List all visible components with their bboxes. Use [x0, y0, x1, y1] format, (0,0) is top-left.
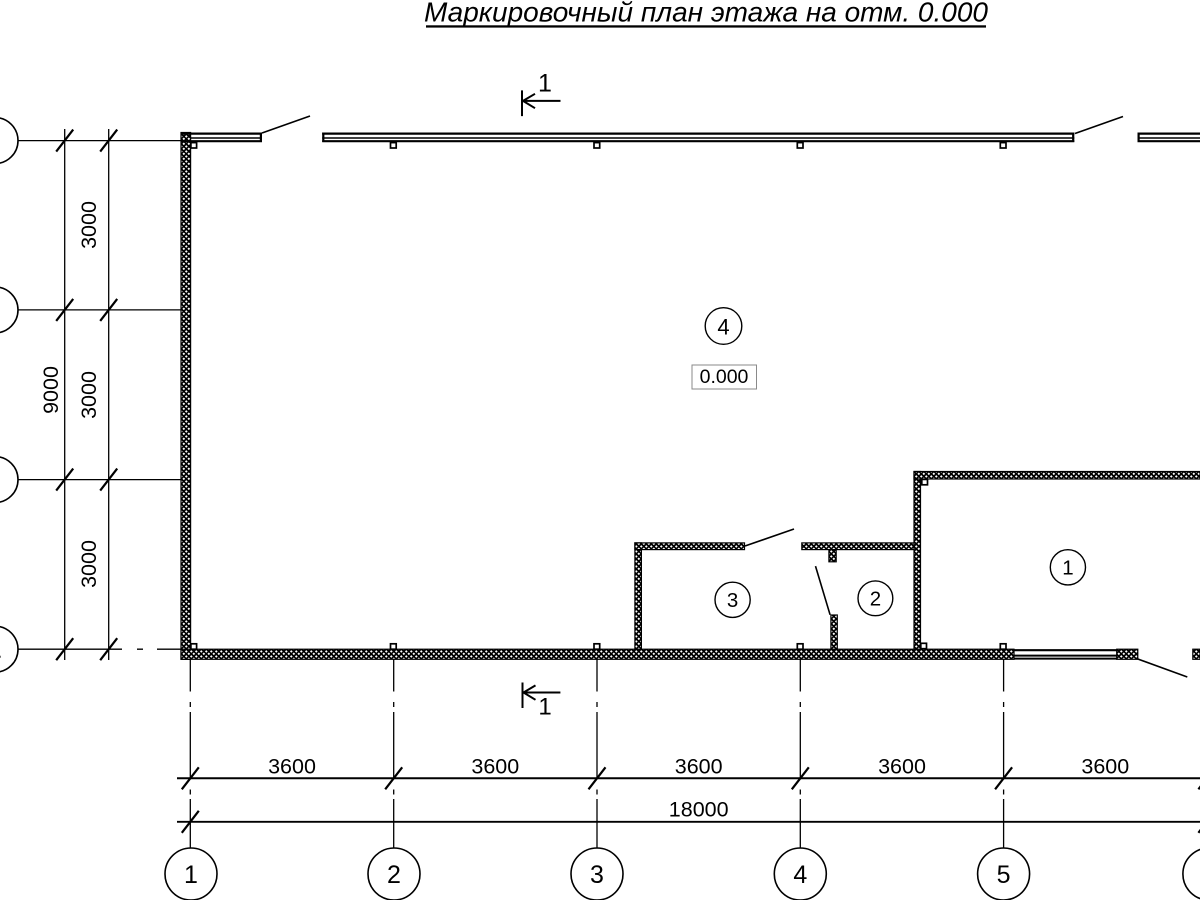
svg-text:А: А — [0, 637, 1, 664]
svg-text:3600: 3600 — [268, 755, 316, 779]
svg-text:9000: 9000 — [39, 366, 63, 414]
svg-text:3000: 3000 — [77, 371, 101, 419]
svg-text:0.000: 0.000 — [700, 366, 749, 388]
svg-text:1: 1 — [184, 861, 198, 889]
svg-text:3: 3 — [727, 589, 738, 612]
svg-text:5: 5 — [997, 861, 1011, 889]
svg-text:3600: 3600 — [878, 755, 926, 779]
svg-text:3600: 3600 — [1081, 755, 1129, 779]
svg-text:3000: 3000 — [77, 540, 101, 588]
svg-text:3600: 3600 — [675, 755, 723, 779]
svg-text:Б: Б — [0, 467, 1, 494]
svg-text:В: В — [0, 297, 1, 324]
svg-text:1: 1 — [1062, 557, 1073, 580]
svg-text:4: 4 — [717, 314, 729, 339]
svg-text:2: 2 — [387, 861, 401, 889]
svg-text:3000: 3000 — [77, 201, 101, 249]
svg-text:3600: 3600 — [471, 755, 519, 779]
svg-text:1: 1 — [538, 694, 551, 721]
svg-text:Маркировочный план этажа на от: Маркировочный план этажа на отм. 0.000 — [424, 0, 988, 28]
svg-text:4: 4 — [793, 861, 807, 889]
svg-text:3: 3 — [590, 861, 604, 889]
svg-text:1: 1 — [538, 70, 552, 98]
svg-text:18000: 18000 — [669, 798, 729, 822]
svg-text:2: 2 — [870, 588, 881, 611]
